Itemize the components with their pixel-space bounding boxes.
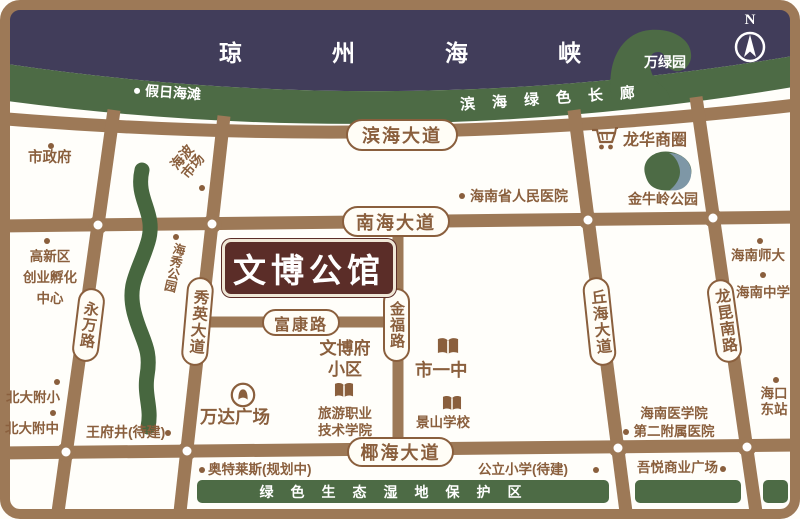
poi-medical-college-hospital: 海南医学院 第二附属医院 (628, 405, 720, 440)
poi-dot (134, 88, 140, 94)
poi-dot (54, 379, 60, 385)
shopping-cart-icon (589, 126, 619, 152)
wetland-strip-label: 绿色生态湿地保护区 (197, 484, 601, 501)
road-pill-nanhai: 南海大道 (342, 206, 450, 237)
poi-pku-middle: 北大附中 (5, 421, 59, 437)
poi-outlets: 奥特莱斯(规划中) (208, 462, 312, 478)
poi-dot (593, 467, 599, 473)
poi-jingshan-school: 景山学校 (416, 415, 470, 431)
poi-pku-primary: 北大附小 (6, 390, 60, 406)
poi-dot (173, 234, 179, 240)
north-compass: N (728, 12, 772, 65)
location-map: 琼州海峡 滨海绿色长廊 假日海滩 万绿园 N 滨海大道 南海大道 椰海大道 富康… (0, 0, 800, 519)
poi-dot (199, 467, 205, 473)
poi-dot (48, 143, 54, 149)
poi-hainan-normal-univ: 海南师大 (731, 248, 785, 264)
poi-dot (773, 377, 779, 383)
wanda-logo-icon (229, 381, 257, 409)
poi-jinniuling-park: 金牛岭公园 (628, 191, 698, 208)
poi-wanda-plaza: 万达广场 (200, 407, 270, 428)
poi-wenbofu-estate: 文博府小区 (300, 338, 390, 381)
poi-dot (50, 410, 56, 416)
poi-public-primary: 公立小学(待建) (478, 462, 568, 478)
open-book-icon (436, 337, 460, 356)
poi-dot (757, 238, 763, 244)
poi-wuyue-plaza: 吾悦商业广场 (637, 460, 718, 476)
poi-no1-middle-school: 市一中 (415, 360, 468, 381)
north-label: N (745, 12, 756, 29)
poi-longhua-cbd: 龙华商圈 (623, 131, 687, 150)
open-book-icon (333, 382, 355, 399)
road-pill-binhai: 滨海大道 (346, 119, 458, 151)
poi-incubation-center: 高新区 创业孵化 中心 (4, 247, 96, 310)
poi-city-government: 市政府 (28, 150, 72, 167)
poi-dot (760, 272, 766, 278)
poi-wangfujing: 王府井(待建) (86, 424, 165, 441)
road-pill-yehai: 椰海大道 (347, 437, 454, 467)
strait-label: 琼州海峡 (219, 40, 671, 68)
poi-dot (459, 193, 465, 199)
poi-hainan-middle-school: 海南中学 (736, 285, 790, 301)
poi-dot (165, 430, 171, 436)
poi-dot (199, 185, 205, 191)
wanlv-park-label: 万绿园 (644, 54, 686, 71)
poi-peoples-hospital: 海南省人民医院 (470, 188, 568, 205)
poi-dot (44, 238, 50, 244)
poi-tourism-college: 旅游职业技术学院 (310, 406, 380, 440)
poi-dot (720, 466, 726, 472)
open-book-icon (441, 395, 463, 412)
road-pill-fukang: 富康路 (262, 309, 340, 336)
poi-haikou-east-station: 海口东站 (752, 386, 796, 418)
estate-name-box: 文博公馆 (222, 239, 396, 297)
north-compass-icon (732, 29, 768, 65)
